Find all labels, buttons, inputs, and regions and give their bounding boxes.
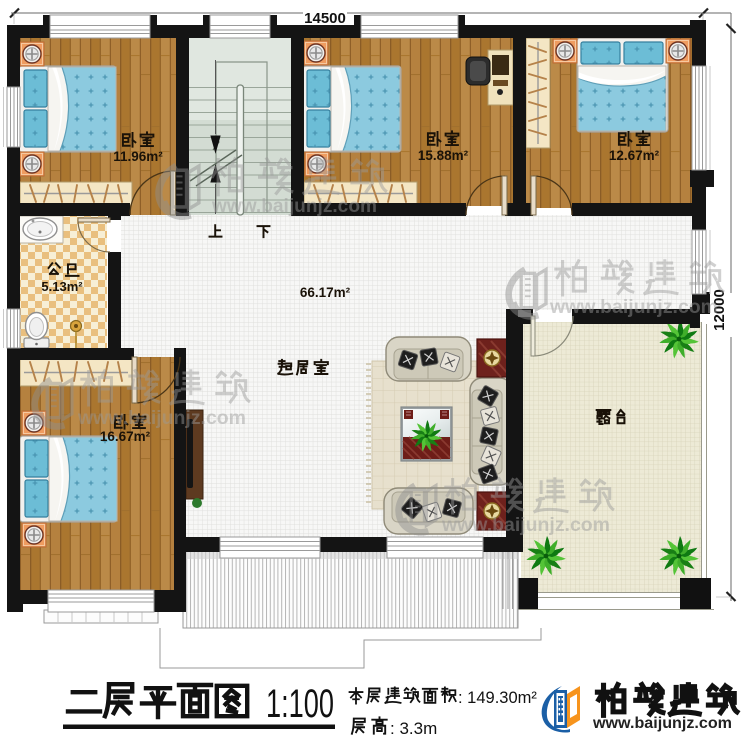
svg-text:: 3.3m: : 3.3m (390, 719, 437, 738)
svg-text:15.88m²: 15.88m² (418, 148, 469, 163)
svg-text:14500: 14500 (304, 10, 346, 27)
svg-text:www.baijunjz.com: www.baijunjz.com (211, 196, 377, 217)
svg-text:www.baijunjz.com: www.baijunjz.com (77, 408, 246, 429)
svg-text:www.baijunjz.com: www.baijunjz.com (441, 515, 610, 536)
svg-text:1:100: 1:100 (266, 682, 334, 726)
svg-text:12.67m²: 12.67m² (609, 148, 660, 163)
svg-text:: 149.30m²: : 149.30m² (458, 689, 537, 707)
svg-text:5.13m²: 5.13m² (41, 279, 83, 294)
svg-text:www.baijunjz.com: www.baijunjz.com (592, 715, 732, 732)
svg-text:66.17m²: 66.17m² (300, 285, 351, 300)
svg-text:11.96m²: 11.96m² (113, 149, 163, 164)
svg-text:www.baijunjz.com: www.baijunjz.com (549, 297, 718, 318)
svg-text:16.67m²: 16.67m² (100, 429, 151, 444)
